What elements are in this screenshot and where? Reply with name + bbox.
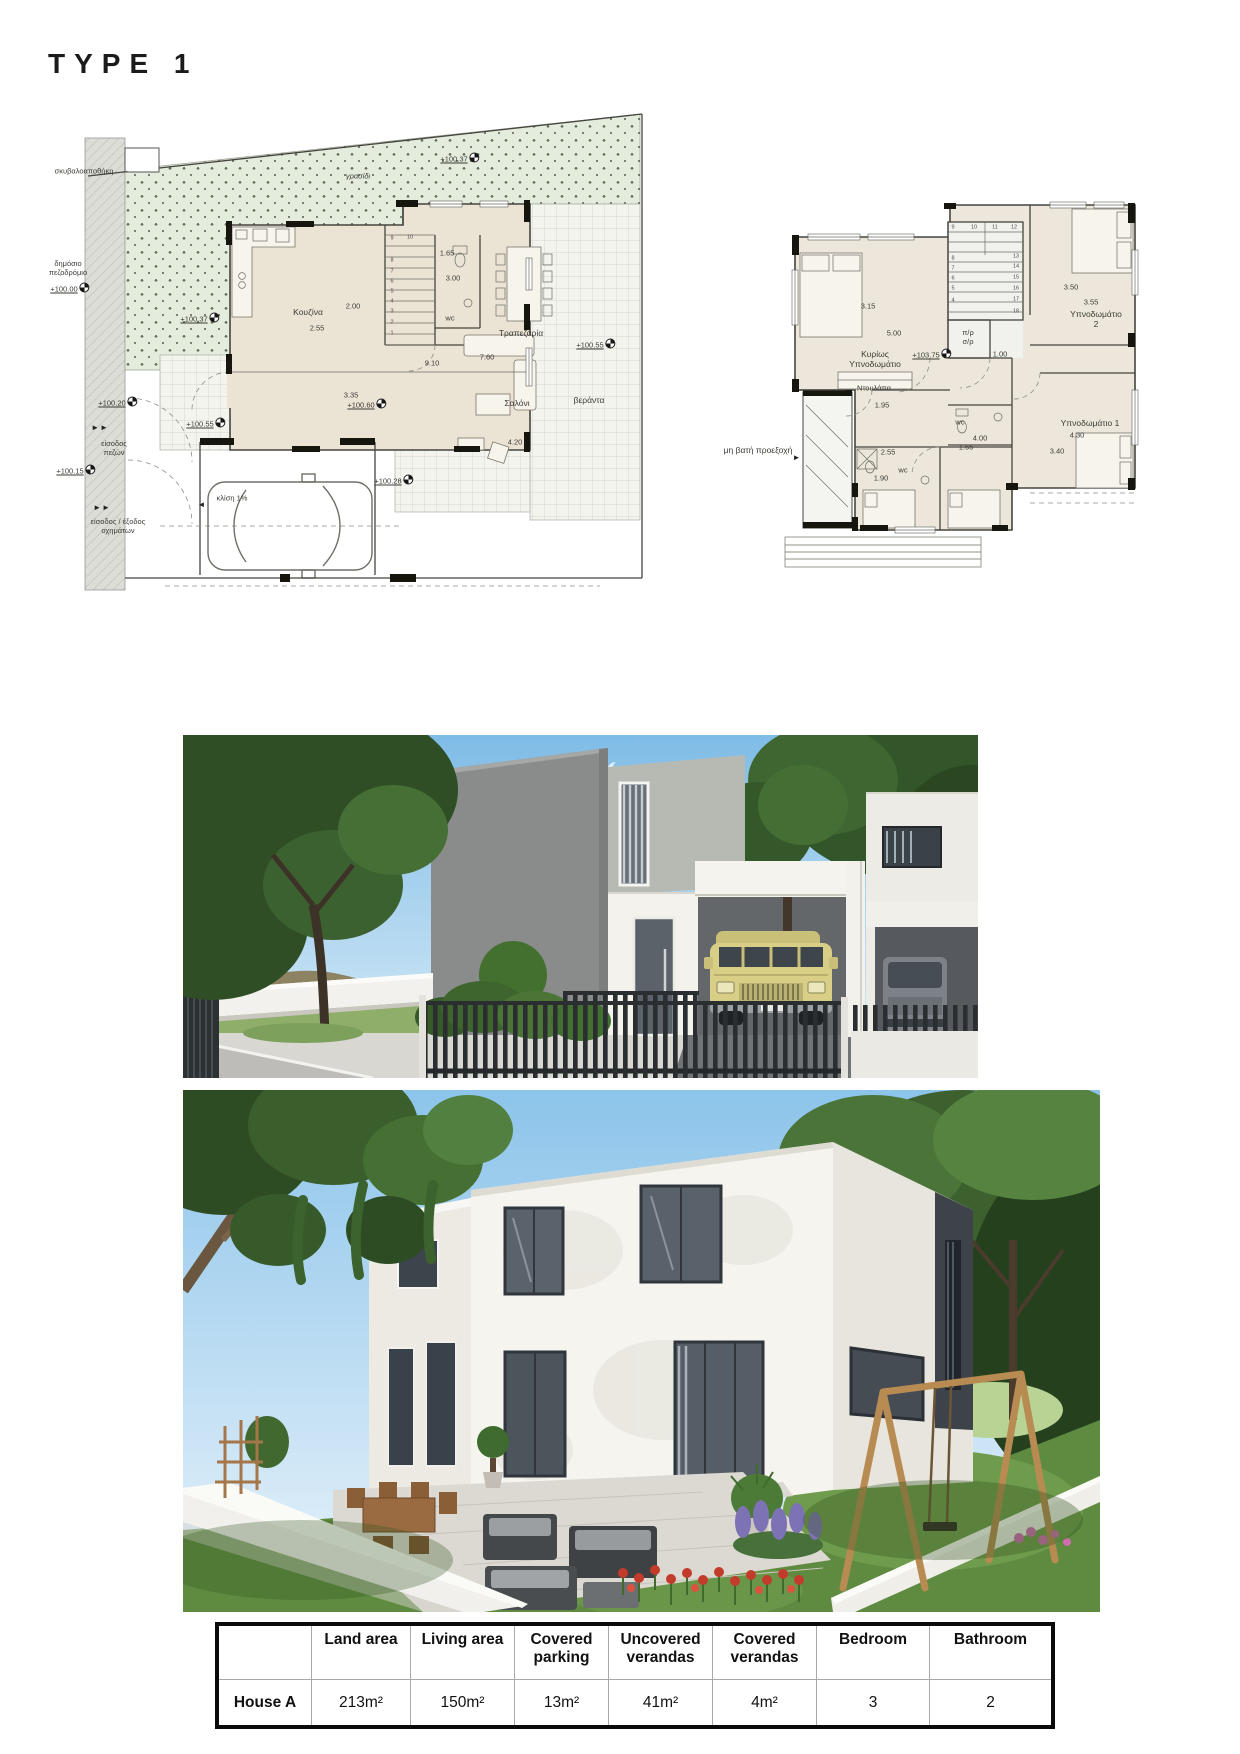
plan-label: Υπνοδωμάτιο 2 [1069, 309, 1123, 329]
spec-row-label: House A [217, 1680, 312, 1728]
plan-label: γρασίδι [346, 172, 370, 181]
plan-label: 10 [971, 225, 977, 232]
house-spec-table: Land areaLiving areaCovered parkingUncov… [215, 1622, 1055, 1729]
plan-label: 3.40 [1050, 447, 1065, 456]
plan-label: 6 [390, 279, 393, 286]
level-annotation: +100.20 [98, 397, 137, 408]
plan-label: ◄ [198, 500, 207, 510]
spec-header-empty [217, 1624, 312, 1680]
spec-header-covered-parking: Covered parking [515, 1624, 609, 1680]
plan-label: 12 [1011, 225, 1017, 232]
plan-label: Υπνοδωμάτιο 1 [1061, 418, 1120, 428]
level-annotation: +100.55 [576, 339, 615, 350]
plan-label: Ντουλάπα [857, 384, 891, 393]
plan-label: είσοδος / έξοδος οχημάτων [91, 517, 146, 535]
plan-label: 3 [390, 309, 393, 316]
level-marker-icon [377, 399, 387, 409]
plan-label: 17 [1013, 297, 1019, 304]
plan-label: 1.00 [993, 350, 1008, 359]
level-marker-icon [86, 465, 96, 475]
plan-label: 18 [1013, 309, 1019, 316]
plan-label: 3.15 [861, 302, 876, 311]
exterior-render-front [183, 735, 978, 1078]
level-marker-icon [404, 475, 414, 485]
plan-label: ►► [91, 423, 109, 433]
spec-value: 2 [930, 1680, 1054, 1728]
spec-header-uncovered-verandas: Uncovered verandas [609, 1624, 713, 1680]
spec-value: 150m² [411, 1680, 515, 1728]
plan-label: 8 [390, 258, 393, 265]
spec-header-living-area: Living area [411, 1624, 515, 1680]
plan-label: wc [955, 418, 964, 427]
plan-label: Τραπεζαρία [499, 328, 543, 338]
plan-label: δημόσιο πεζοδρόμιο [49, 259, 87, 277]
plan-label: 9 [390, 236, 393, 243]
first-plan-annotations: 3.155.00Κυρίως Υπνοδωμάτιοπ/ρ σ/ρ+103.75… [700, 195, 1150, 575]
plan-label: 4 [390, 299, 393, 306]
spec-value: 4m² [713, 1680, 817, 1728]
plan-label: 4.20 [508, 438, 523, 447]
spec-header-covered-verandas: Covered verandas [713, 1624, 817, 1680]
first-floor-plan: 3.155.00Κυρίως Υπνοδωμάτιοπ/ρ σ/ρ+103.75… [700, 195, 1150, 575]
plan-label: 7 [390, 269, 393, 276]
plan-label: 9.10 [425, 359, 440, 368]
level-annotation: +100.37 [180, 313, 219, 324]
level-marker-icon [210, 313, 220, 323]
plan-label: 2.55 [881, 448, 896, 457]
plan-label: Κουζίνα [293, 307, 323, 317]
spec-value: 41m² [609, 1680, 713, 1728]
exterior-render-garden-image [183, 1090, 1100, 1612]
plan-label: 4.30 [1070, 431, 1085, 440]
plan-label: 4 [951, 298, 954, 305]
level-annotation: +100.37 [440, 153, 479, 164]
plan-label: ►► [93, 503, 111, 513]
plan-label: ► [793, 453, 802, 463]
spec-value: 3 [817, 1680, 930, 1728]
plan-label: κλίση 1% [217, 494, 248, 503]
spec-header-bedroom: Bedroom [817, 1624, 930, 1680]
plan-label: 16 [1013, 286, 1019, 293]
plan-label: 9 [951, 225, 954, 232]
plan-label: 1 [390, 331, 393, 338]
plan-label: 5 [951, 286, 954, 293]
plan-label: 14 [1013, 264, 1019, 271]
plan-label: π/ρ σ/ρ [962, 328, 974, 346]
plan-label: 11 [992, 225, 998, 232]
plan-label: είσοδος πεζών [101, 439, 127, 457]
plan-label: 1.95 [875, 401, 890, 410]
plan-label: 5.00 [887, 329, 902, 338]
plan-label: 15 [1013, 275, 1019, 282]
plan-label: → [122, 166, 131, 176]
ground-floor-site-plan: σκυβαλοαποθήκη→δημόσιο πεζοδρόμιο+100.00… [40, 108, 650, 595]
plan-label: βεράντα [574, 395, 605, 405]
spec-header-land-area: Land area [312, 1624, 411, 1680]
level-annotation: +100.00 [50, 283, 89, 294]
level-annotation: +100.28 [374, 475, 413, 486]
plan-label: 2.00 [346, 302, 361, 311]
plan-label: 3.50 [1064, 283, 1079, 292]
plan-label: 2 [390, 320, 393, 327]
level-marker-icon [470, 153, 480, 163]
plan-label: 6 [951, 276, 954, 283]
plan-label: 3.55 [1084, 298, 1099, 307]
plan-label: 1.65 [959, 443, 974, 452]
level-annotation: +103.75 [912, 349, 951, 360]
spec-value: 213m² [312, 1680, 411, 1728]
plan-label: 2.55 [310, 324, 325, 333]
plan-label: Σαλόνι [504, 398, 529, 408]
spec-value: 13m² [515, 1680, 609, 1728]
level-annotation: +100.60 [347, 399, 386, 410]
plan-label: wc [445, 314, 454, 323]
plan-label: wc [898, 466, 907, 475]
level-annotation: +100.15 [56, 465, 95, 476]
spec-header-bathroom: Bathroom [930, 1624, 1054, 1680]
plan-label: 7 [951, 266, 954, 273]
plan-label: 8 [951, 256, 954, 263]
plan-label: 13 [1013, 254, 1019, 261]
plan-label: Κυρίως Υπνοδωμάτιο [849, 349, 901, 369]
page-title: TYPE 1 [48, 48, 198, 80]
exterior-render-garden [183, 1090, 1100, 1612]
plan-label: 3.00 [446, 274, 461, 283]
level-marker-icon [216, 418, 226, 428]
level-annotation: +100.55 [186, 418, 225, 429]
exterior-render-front-image [183, 735, 978, 1078]
plan-label: 1.90 [874, 474, 889, 483]
level-marker-icon [80, 283, 90, 293]
plan-label: 10 [407, 235, 413, 242]
plan-label: 1.65 [440, 249, 455, 258]
ground-plan-annotations: σκυβαλοαποθήκη→δημόσιο πεζοδρόμιο+100.00… [40, 108, 650, 595]
level-marker-icon [606, 339, 616, 349]
brochure-page: TYPE 1 [0, 0, 1240, 1754]
plan-label: μη βατή προεξοχή [724, 445, 793, 455]
plan-label: 4.00 [973, 434, 988, 443]
level-marker-icon [128, 397, 138, 407]
plan-label: 7.60 [480, 353, 495, 362]
level-marker-icon [942, 349, 952, 359]
plan-label: 5 [390, 289, 393, 296]
plan-label: σκυβαλοαποθήκη [55, 167, 114, 176]
